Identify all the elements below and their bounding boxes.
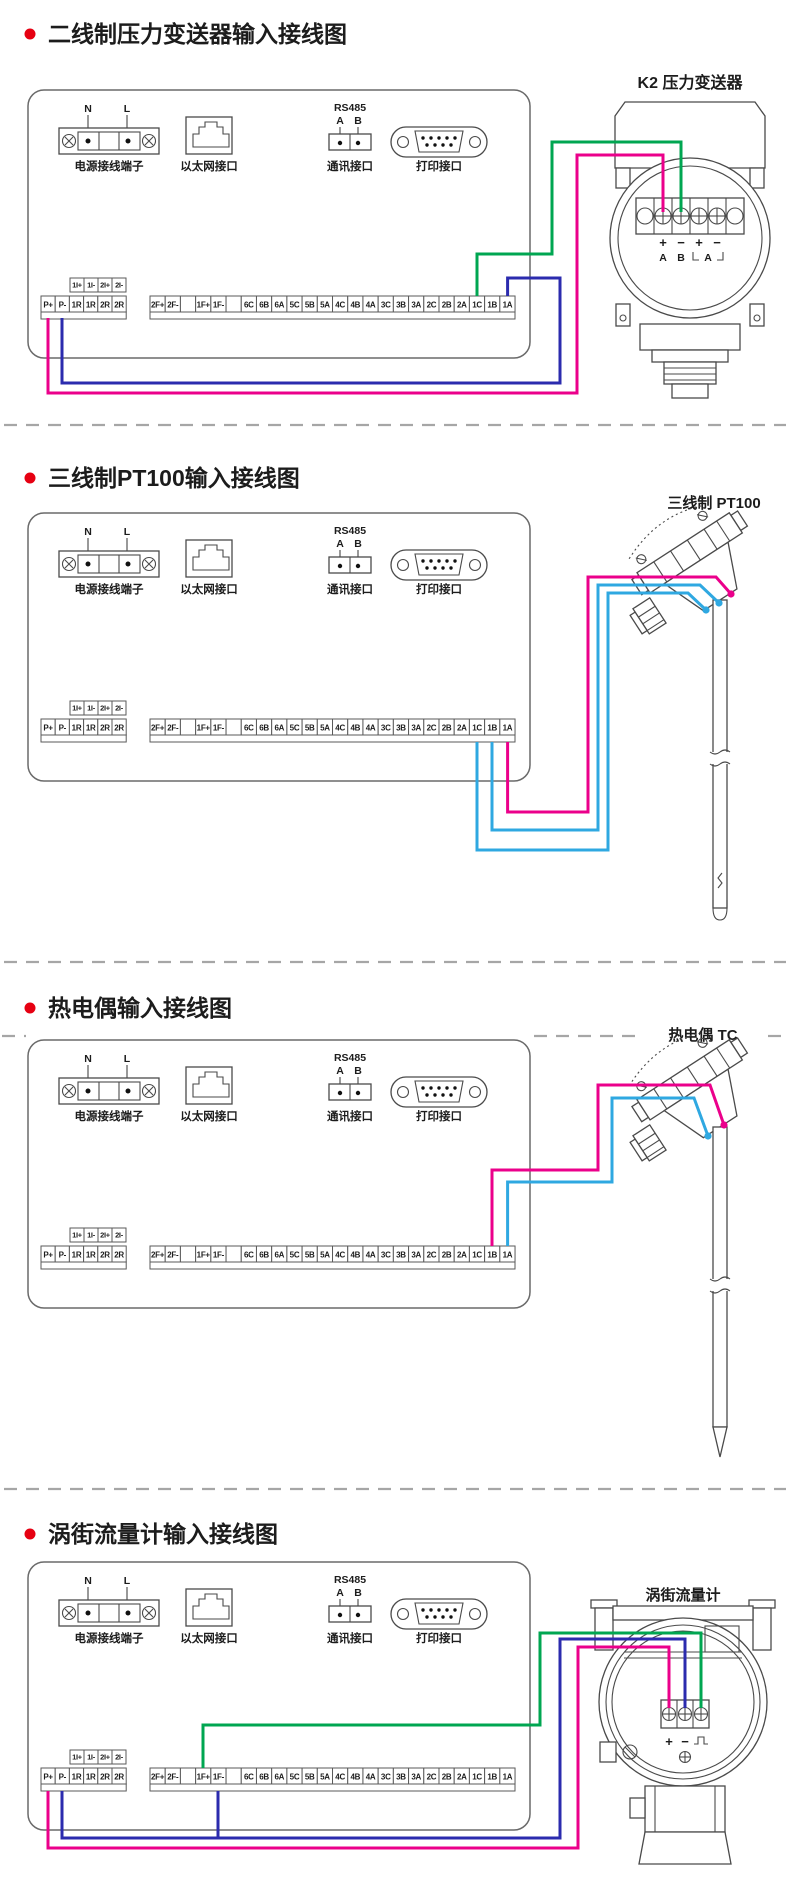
wiring-diagram-canvas: N L 电源接线端子 [0, 0, 790, 1886]
vortex-flowmeter-figure: 涡街流量计 + − [591, 1586, 775, 1864]
probe-tip [713, 1427, 727, 1457]
terminal-sign: + [659, 235, 667, 250]
wire-dot [702, 606, 709, 613]
terminal-b-label: B [677, 252, 685, 264]
pressure-transmitter-figure: K2 压力变送器 + − + − A B A [610, 73, 770, 398]
wire-pink-1a-to-pt100 [508, 577, 731, 812]
terminal-loop-label: A [704, 252, 712, 264]
terminal-sign: − [677, 235, 685, 250]
wire-dot [715, 599, 722, 606]
pt100-sensor-figure: 三线制 PT100 [597, 485, 773, 920]
bullet-icon [25, 1003, 36, 1014]
device-label: 涡街流量计 [645, 1586, 720, 1604]
wire-dot [704, 1132, 711, 1139]
section-two-wire-pressure-transmitter: 二线制压力变送器输入接线图 K2 压力变送器 + − + − [25, 21, 771, 398]
device-label: K2 压力变送器 [638, 73, 744, 92]
terminal-sign: − [681, 1734, 689, 1749]
section-three-wire-pt100: 三线制PT100输入接线图 三线制 PT100 [25, 465, 773, 920]
terminal-sign: − [713, 235, 721, 250]
wire-dot [727, 590, 734, 597]
terminal-a-label: A [659, 252, 667, 264]
bullet-icon [25, 29, 36, 40]
section-thermocouple: 热电偶输入接线图 热电偶 TC [2, 995, 788, 1457]
section-title: 三线制PT100输入接线图 [48, 465, 300, 491]
section-vortex-flowmeter: 涡街流量计输入接线图 涡街流量计 + − [25, 1521, 776, 1864]
bullet-icon [25, 1529, 36, 1540]
section-title: 涡街流量计输入接线图 [48, 1521, 278, 1547]
recorder-panel [28, 1562, 530, 1830]
device-label: 三线制 PT100 [667, 494, 760, 512]
recorder-panel [28, 90, 530, 358]
tc-sensor-figure: 热电偶 TC [597, 1012, 773, 1457]
bullet-icon [25, 473, 36, 484]
section-title: 二线制压力变送器输入接线图 [48, 21, 347, 47]
wire-dot [720, 1121, 727, 1128]
recorder-panel [28, 1040, 530, 1308]
recorder-panel [28, 513, 530, 781]
wiring-diagram-page: N L 电源接线端子 [0, 0, 790, 1886]
thread-stub [664, 362, 716, 384]
terminal-sign: + [695, 235, 703, 250]
terminal-sign: + [665, 1734, 673, 1749]
section-title: 热电偶输入接线图 [48, 995, 232, 1021]
